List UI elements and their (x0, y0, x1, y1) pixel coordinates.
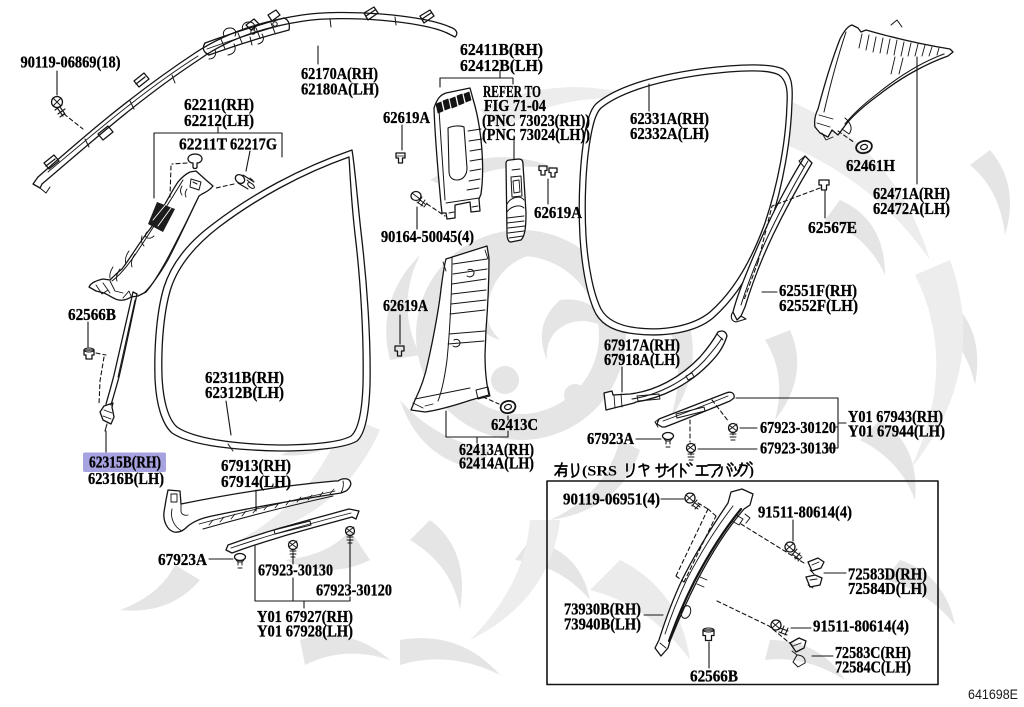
svg-text:72584D(LH): 72584D(LH) (848, 579, 927, 598)
svg-text:67918A(LH): 67918A(LH) (604, 350, 680, 369)
svg-text:62211T: 62211T (179, 135, 228, 154)
svg-text:91511-80614(4): 91511-80614(4) (813, 617, 909, 636)
svg-text:62212(LH): 62212(LH) (184, 111, 254, 130)
svg-text:62619A: 62619A (534, 203, 583, 222)
svg-text:62566B: 62566B (68, 305, 116, 324)
svg-text:62217G: 62217G (230, 135, 277, 154)
svg-text:(SRS: (SRS (582, 464, 617, 480)
svg-text:Y01 67928(LH): Y01 67928(LH) (257, 622, 353, 641)
svg-text:62312B(LH): 62312B(LH) (205, 383, 284, 402)
svg-text:(PNC 73024(LH)): (PNC 73024(LH)) (482, 125, 590, 144)
svg-text:67923-30130: 67923-30130 (760, 439, 836, 458)
svg-text:72584C(LH): 72584C(LH) (835, 658, 911, 677)
svg-text:91511-80614(4): 91511-80614(4) (758, 503, 852, 522)
svg-text:90119-06951(4): 90119-06951(4) (563, 490, 660, 509)
svg-text:62566B: 62566B (690, 667, 738, 686)
svg-text:90119-06869(18): 90119-06869(18) (21, 53, 121, 72)
svg-text:62472A(LH): 62472A(LH) (873, 199, 950, 218)
svg-text:62180A(LH): 62180A(LH) (301, 80, 379, 99)
svg-text:67923A: 67923A (158, 550, 208, 569)
svg-text:62552F(LH): 62552F(LH) (779, 296, 858, 315)
svg-text:62316B(LH): 62316B(LH) (88, 469, 164, 488)
svg-text:67914(LH): 67914(LH) (221, 472, 291, 491)
svg-text:62332A(LH): 62332A(LH) (630, 124, 709, 143)
svg-text:641698E: 641698E (968, 686, 1018, 702)
svg-text:67923A: 67923A (587, 429, 635, 448)
svg-text:62413C: 62413C (491, 415, 538, 434)
svg-text:62567E: 62567E (808, 218, 857, 237)
svg-text:62414A(LH): 62414A(LH) (459, 454, 534, 473)
svg-text:): ) (749, 464, 754, 480)
svg-text:Y01 67944(LH): Y01 67944(LH) (848, 422, 945, 441)
svg-text:67923-30130: 67923-30130 (258, 561, 333, 580)
svg-text:62412B(LH): 62412B(LH) (460, 56, 543, 75)
svg-text:67923-30120: 67923-30120 (760, 418, 836, 437)
svg-text:73940B(LH): 73940B(LH) (564, 615, 641, 634)
svg-text:62461H: 62461H (846, 156, 895, 175)
svg-text:62619A: 62619A (383, 108, 431, 127)
svg-text:67923-30120: 67923-30120 (316, 581, 392, 600)
svg-text:90164-50045(4): 90164-50045(4) (381, 227, 474, 246)
svg-text:62619A: 62619A (383, 296, 429, 315)
